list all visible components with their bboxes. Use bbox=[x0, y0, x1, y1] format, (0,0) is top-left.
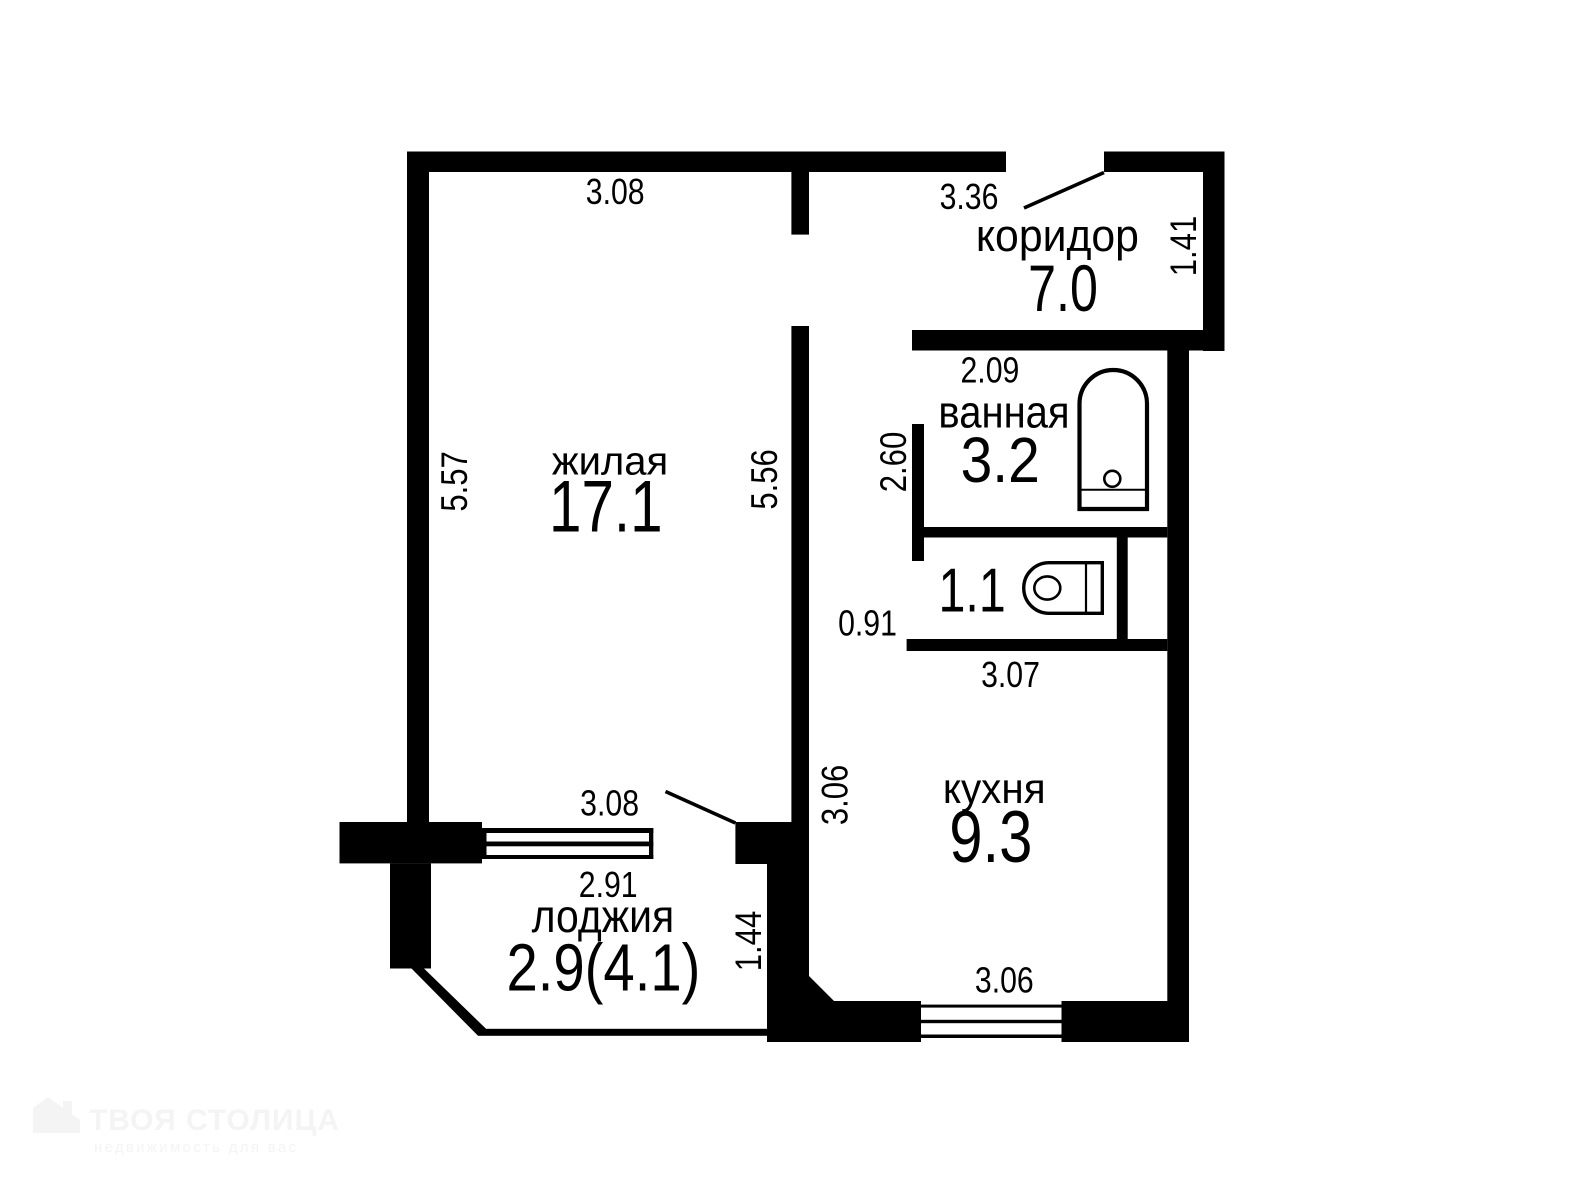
svg-text:17.1: 17.1 bbox=[549, 466, 663, 548]
svg-text:3.08: 3.08 bbox=[580, 784, 639, 824]
svg-text:2.60: 2.60 bbox=[874, 432, 915, 492]
svg-text:1.1: 1.1 bbox=[938, 556, 1005, 625]
svg-text:3.06: 3.06 bbox=[815, 765, 856, 825]
svg-text:5.56: 5.56 bbox=[745, 449, 786, 509]
svg-text:7.0: 7.0 bbox=[1028, 253, 1098, 326]
svg-text:3.2: 3.2 bbox=[961, 424, 1040, 496]
svg-text:3.08: 3.08 bbox=[586, 173, 645, 213]
svg-text:ТВОЯ СТОЛИЦА: ТВОЯ СТОЛИЦА bbox=[89, 1104, 339, 1137]
svg-text:1.41: 1.41 bbox=[1164, 216, 1205, 276]
svg-text:2.9(4.1): 2.9(4.1) bbox=[506, 931, 700, 1006]
svg-text:2.09: 2.09 bbox=[960, 351, 1019, 391]
svg-text:1.44: 1.44 bbox=[729, 911, 770, 971]
svg-text:3.06: 3.06 bbox=[975, 961, 1034, 1001]
svg-text:0.91: 0.91 bbox=[838, 604, 897, 644]
svg-text:3.07: 3.07 bbox=[981, 655, 1040, 695]
svg-text:5.57: 5.57 bbox=[435, 451, 476, 511]
svg-text:9.3: 9.3 bbox=[949, 798, 1032, 879]
